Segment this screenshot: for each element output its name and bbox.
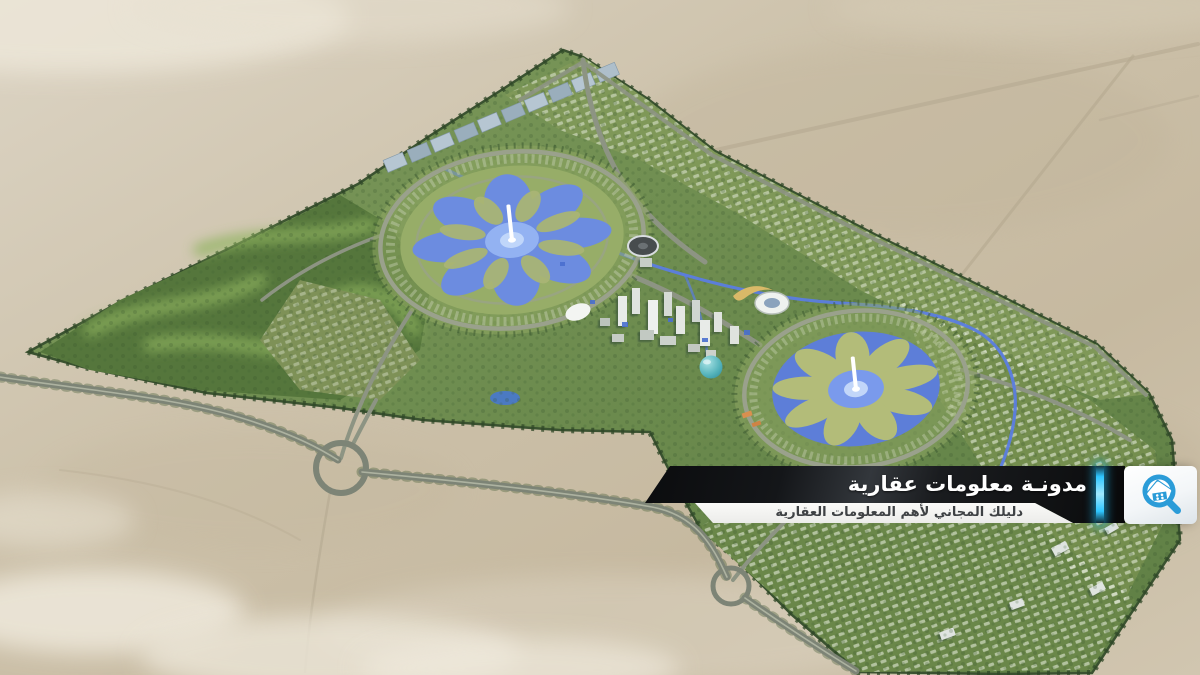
- banner-title: مدونـة معلومات عقارية: [645, 466, 1087, 503]
- banner-subtitle: دليلك المجاني لأهم المعلومات العقارية: [693, 503, 1075, 523]
- accent-stripe: [1096, 463, 1104, 525]
- logo-card: [1124, 466, 1197, 524]
- thumbnail-image: مدونـة معلومات عقارية دليلك المجاني لأهم…: [0, 0, 1200, 675]
- glass-dome: [700, 356, 723, 379]
- aerial-city-render: [0, 0, 1200, 675]
- house-magnifier-icon: [1137, 471, 1185, 519]
